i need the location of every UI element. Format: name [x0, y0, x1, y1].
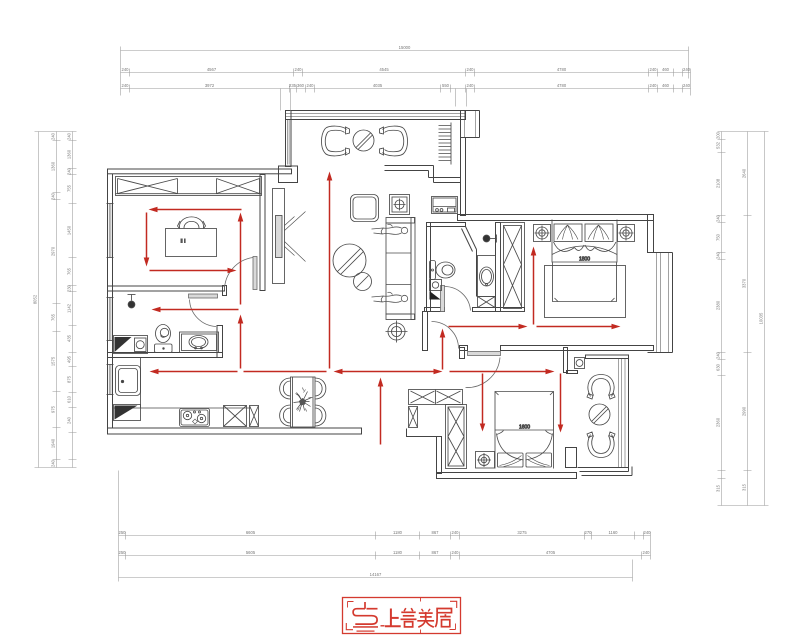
svg-text:6605: 6605: [246, 530, 256, 535]
svg-text:240: 240: [644, 530, 652, 535]
svg-text:240: 240: [650, 83, 658, 88]
svg-text:1800: 1800: [579, 257, 590, 263]
svg-text:240: 240: [51, 192, 56, 200]
svg-text:240: 240: [683, 67, 691, 72]
svg-text:240: 240: [307, 83, 315, 88]
svg-text:1940: 1940: [51, 438, 56, 448]
svg-text:240: 240: [295, 67, 303, 72]
svg-text:240: 240: [452, 530, 460, 535]
svg-text:460: 460: [662, 67, 670, 72]
svg-text:2360: 2360: [716, 417, 721, 427]
svg-text:2108: 2108: [716, 178, 721, 188]
svg-text:750: 750: [716, 233, 721, 241]
svg-text:5605: 5605: [246, 550, 256, 555]
svg-text:4705: 4705: [546, 550, 556, 555]
svg-text:2380: 2380: [716, 300, 721, 310]
svg-text:240: 240: [67, 416, 72, 424]
svg-text:550: 550: [442, 83, 450, 88]
svg-text:435: 435: [67, 334, 72, 342]
svg-text:270: 270: [585, 530, 593, 535]
svg-text:867: 867: [432, 530, 440, 535]
svg-text:975: 975: [51, 405, 56, 413]
svg-text:240: 240: [716, 214, 721, 222]
svg-text:1142: 1142: [67, 303, 72, 313]
svg-text:235: 235: [289, 83, 297, 88]
svg-text:460: 460: [662, 83, 670, 88]
svg-text:4035: 4035: [373, 83, 383, 88]
svg-text:610: 610: [67, 395, 72, 403]
svg-text:240: 240: [122, 67, 130, 72]
svg-text:1180: 1180: [393, 550, 403, 555]
svg-text:4567: 4567: [207, 67, 217, 72]
svg-text:3370: 3370: [742, 278, 747, 288]
svg-text:495: 495: [67, 355, 72, 363]
svg-text:14167: 14167: [370, 572, 382, 577]
svg-text:240: 240: [67, 167, 72, 175]
svg-text:315: 315: [716, 484, 721, 492]
svg-text:1160: 1160: [608, 530, 618, 535]
svg-text:875: 875: [67, 375, 72, 383]
svg-text:240: 240: [467, 83, 475, 88]
svg-text:1575: 1575: [51, 356, 56, 366]
svg-text:4780: 4780: [557, 83, 567, 88]
svg-text:250: 250: [119, 550, 127, 555]
svg-text:200: 200: [716, 131, 721, 139]
svg-text:240: 240: [51, 132, 56, 140]
svg-text:3972: 3972: [205, 83, 215, 88]
svg-text:8052: 8052: [33, 294, 38, 304]
svg-text:3275: 3275: [517, 530, 527, 535]
svg-text:1180: 1180: [393, 530, 403, 535]
svg-text:1360: 1360: [67, 149, 72, 159]
svg-text:240: 240: [122, 83, 130, 88]
svg-text:240: 240: [716, 351, 721, 359]
svg-text:240: 240: [467, 67, 475, 72]
svg-text:2990: 2990: [742, 406, 747, 416]
svg-text:765: 765: [67, 267, 72, 275]
svg-text:250: 250: [119, 530, 127, 535]
svg-text:1360: 1360: [51, 161, 56, 171]
svg-text:315: 315: [742, 483, 747, 491]
svg-text:630: 630: [716, 363, 721, 371]
svg-text:15000: 15000: [399, 45, 411, 50]
svg-text:4780: 4780: [557, 67, 567, 72]
svg-text:240: 240: [67, 132, 72, 140]
svg-text:2640: 2640: [742, 168, 747, 178]
svg-text:240: 240: [51, 459, 56, 467]
svg-text:755: 755: [67, 184, 72, 192]
svg-text:765: 765: [51, 313, 56, 321]
svg-text:10035: 10035: [759, 312, 764, 324]
svg-text:2970: 2970: [51, 246, 56, 256]
svg-text:240: 240: [716, 251, 721, 259]
svg-text:240: 240: [683, 83, 691, 88]
svg-text:532: 532: [716, 141, 721, 149]
svg-text:360: 360: [297, 83, 305, 88]
svg-text:867: 867: [432, 550, 440, 555]
svg-text:1450: 1450: [67, 225, 72, 235]
svg-text:240: 240: [650, 67, 658, 72]
svg-text:240: 240: [643, 550, 651, 555]
svg-text:4545: 4545: [379, 67, 389, 72]
svg-text:1600: 1600: [519, 425, 530, 431]
svg-text:240: 240: [452, 550, 460, 555]
svg-text:230: 230: [67, 284, 72, 292]
